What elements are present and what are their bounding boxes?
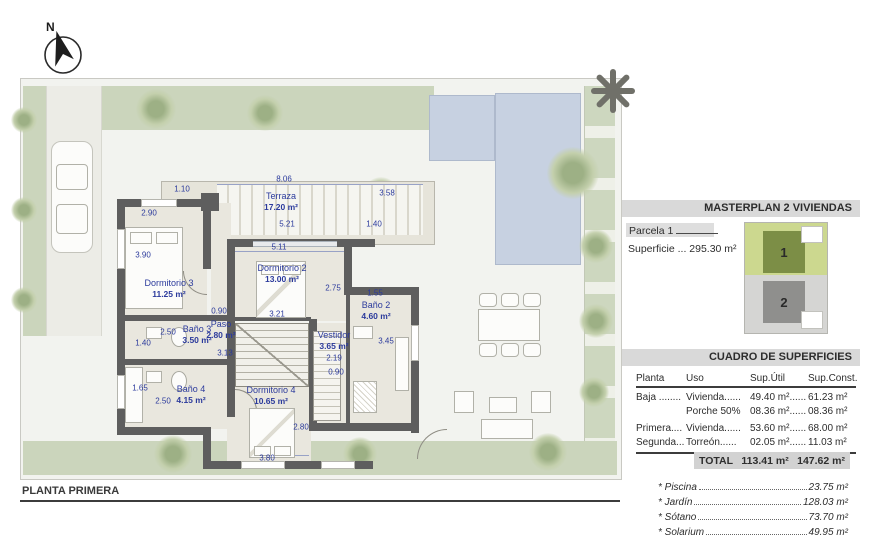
- room-label-paso: Paso 2.80 m²: [206, 319, 235, 340]
- wall: [117, 427, 211, 435]
- dimension-label: 3.13: [217, 349, 233, 358]
- cuadro-header: CUADRO DE SUPERFICIES: [622, 349, 860, 366]
- palm-tree-icon: [154, 435, 192, 473]
- sliding-door: [253, 241, 337, 247]
- dimension-label: 2.19: [326, 354, 342, 363]
- palm-tree-icon: [11, 197, 37, 223]
- dimension-label: 3.58: [379, 189, 395, 198]
- palm-tree-icon: [11, 107, 37, 133]
- wall: [309, 423, 419, 431]
- chair: [501, 343, 519, 357]
- fill-in-line: [676, 224, 718, 234]
- site-map-notch: [801, 311, 823, 329]
- door-arc: [417, 429, 447, 459]
- dimension-label: 8.06: [276, 175, 292, 184]
- palm-tree-icon: [529, 433, 567, 471]
- title-underline: [20, 500, 620, 502]
- dimension-label: 1.40: [135, 339, 151, 348]
- palm-tree-icon: [579, 377, 609, 407]
- wall-pillar: [201, 193, 219, 211]
- superficie-label: Superficie ... 295.30 m²: [628, 243, 737, 255]
- palm-tree-icon: [247, 95, 283, 131]
- palm-tree-icon: [547, 147, 599, 199]
- chair: [523, 343, 541, 357]
- dimension-label: 0.90: [328, 368, 344, 377]
- total-util: 113.41 m²: [741, 455, 788, 467]
- wall: [117, 359, 231, 365]
- palm-tree-icon: [579, 229, 613, 263]
- dining-table: [478, 309, 540, 341]
- site-map-notch: [801, 226, 823, 243]
- pool: [429, 95, 495, 161]
- dimension-line: [233, 251, 345, 252]
- room-label-terraza: Terraza 17.20 m²: [264, 191, 298, 212]
- room-label-dorm4: Dormitorio 4 10.65 m²: [246, 385, 295, 406]
- window: [321, 461, 355, 469]
- chair: [479, 293, 497, 307]
- palm-tree-icon: [136, 89, 176, 129]
- dimension-label: 1.65: [132, 384, 148, 393]
- dimension-label: 3.45: [378, 337, 394, 346]
- site-map-house-1: 1: [763, 231, 805, 273]
- table-row: Segunda... Torreón...... 02.05 m²...... …: [636, 435, 856, 449]
- dimension-label: 2.75: [325, 284, 341, 293]
- dimension-label: 1.40: [366, 220, 382, 229]
- dark-palm-tree-icon: [589, 67, 637, 115]
- room-label-bano2: Baño 2 4.60 m²: [361, 300, 390, 321]
- room-label-dorm3: Dormitorio 3 11.25 m²: [144, 278, 193, 299]
- palm-tree-icon: [579, 304, 613, 338]
- total-const: 147.62 m²: [797, 455, 845, 467]
- dimension-label: 2.90: [141, 209, 157, 218]
- window: [141, 199, 177, 207]
- dimension-label: 1.10: [174, 185, 190, 194]
- dimension-label: 5.11: [272, 243, 287, 252]
- floor-plan: Terraza 17.20 m² Dormitorio 3 11.25 m² D…: [20, 78, 622, 480]
- page: N: [0, 0, 870, 550]
- table-row: Primera.... Vivienda...... 53.60 m².....…: [636, 421, 856, 435]
- sink: [353, 326, 373, 339]
- dimension-label: 2.50: [160, 328, 176, 337]
- sofa: [481, 419, 533, 439]
- list-item: * Jardín 128.03 m²: [658, 493, 848, 508]
- masterplan-header: MASTERPLAN 2 VIVIENDAS: [622, 200, 860, 217]
- page-title: PLANTA PRIMERA: [22, 485, 119, 497]
- dimension-label: 0.90: [211, 307, 227, 316]
- shower: [125, 367, 143, 423]
- sink: [146, 371, 162, 383]
- site-map-house-2: 2: [763, 281, 805, 323]
- armchair: [531, 391, 551, 413]
- dimension-label: 2.50: [155, 397, 171, 406]
- dimension-label: 3.80: [259, 454, 275, 463]
- list-item: * Solarium 49.95 m²: [658, 523, 848, 538]
- dimension-label: 5.21: [279, 220, 295, 229]
- car: [51, 141, 93, 253]
- dimension-label: 3.21: [269, 310, 285, 319]
- surfaces-table: Planta Uso Sup.Útil Sup.Const. Baja ....…: [636, 370, 856, 454]
- list-item: * Piscina 23.75 m²: [658, 478, 848, 493]
- north-arrow-icon: [34, 24, 92, 82]
- armchair: [454, 391, 474, 413]
- grass-bottom: [23, 441, 617, 475]
- dimension-label: 2.80: [293, 423, 309, 432]
- room-label-bano4: Baño 4 4.15 m²: [176, 384, 205, 405]
- coffee-table: [489, 397, 517, 413]
- table-header-row: Planta Uso Sup.Útil Sup.Const.: [636, 370, 856, 388]
- extras-list: * Piscina 23.75 m² * Jardín 128.03 m² * …: [658, 478, 848, 538]
- table-row: Baja ........ Vivienda...... 49.40 m²...…: [636, 390, 856, 404]
- dimension-line: [217, 184, 423, 185]
- chair: [501, 293, 519, 307]
- garden-path-right: [584, 86, 615, 466]
- total-label: TOTAL: [699, 455, 733, 467]
- table-row: Porche 50% 08.36 m²...... 08.36 m²: [636, 404, 856, 418]
- wall: [203, 211, 211, 269]
- palm-tree-icon: [11, 287, 37, 313]
- shower: [353, 381, 377, 413]
- list-item: * Sótano 73.70 m²: [658, 508, 848, 523]
- window: [117, 229, 125, 269]
- bed: [249, 408, 295, 458]
- total-row: TOTAL 113.41 m² 147.62 m²: [694, 452, 850, 469]
- parcela-field: Parcela 1: [626, 223, 714, 237]
- chair: [523, 293, 541, 307]
- parcela-label: Parcela 1: [629, 225, 673, 237]
- window: [411, 325, 419, 361]
- stairs: [235, 323, 309, 387]
- room-label-vestidor: Vestidor 3.65 m²: [318, 330, 351, 351]
- chair: [479, 343, 497, 357]
- room-label-dorm2: Dormitorio 2 13.00 m²: [257, 263, 306, 284]
- wall: [346, 293, 350, 423]
- window: [117, 375, 125, 409]
- bathtub: [395, 337, 409, 391]
- dimension-label: 3.90: [135, 251, 151, 260]
- site-map: 1 2: [744, 222, 828, 334]
- dimension-label: 1.55: [367, 289, 383, 298]
